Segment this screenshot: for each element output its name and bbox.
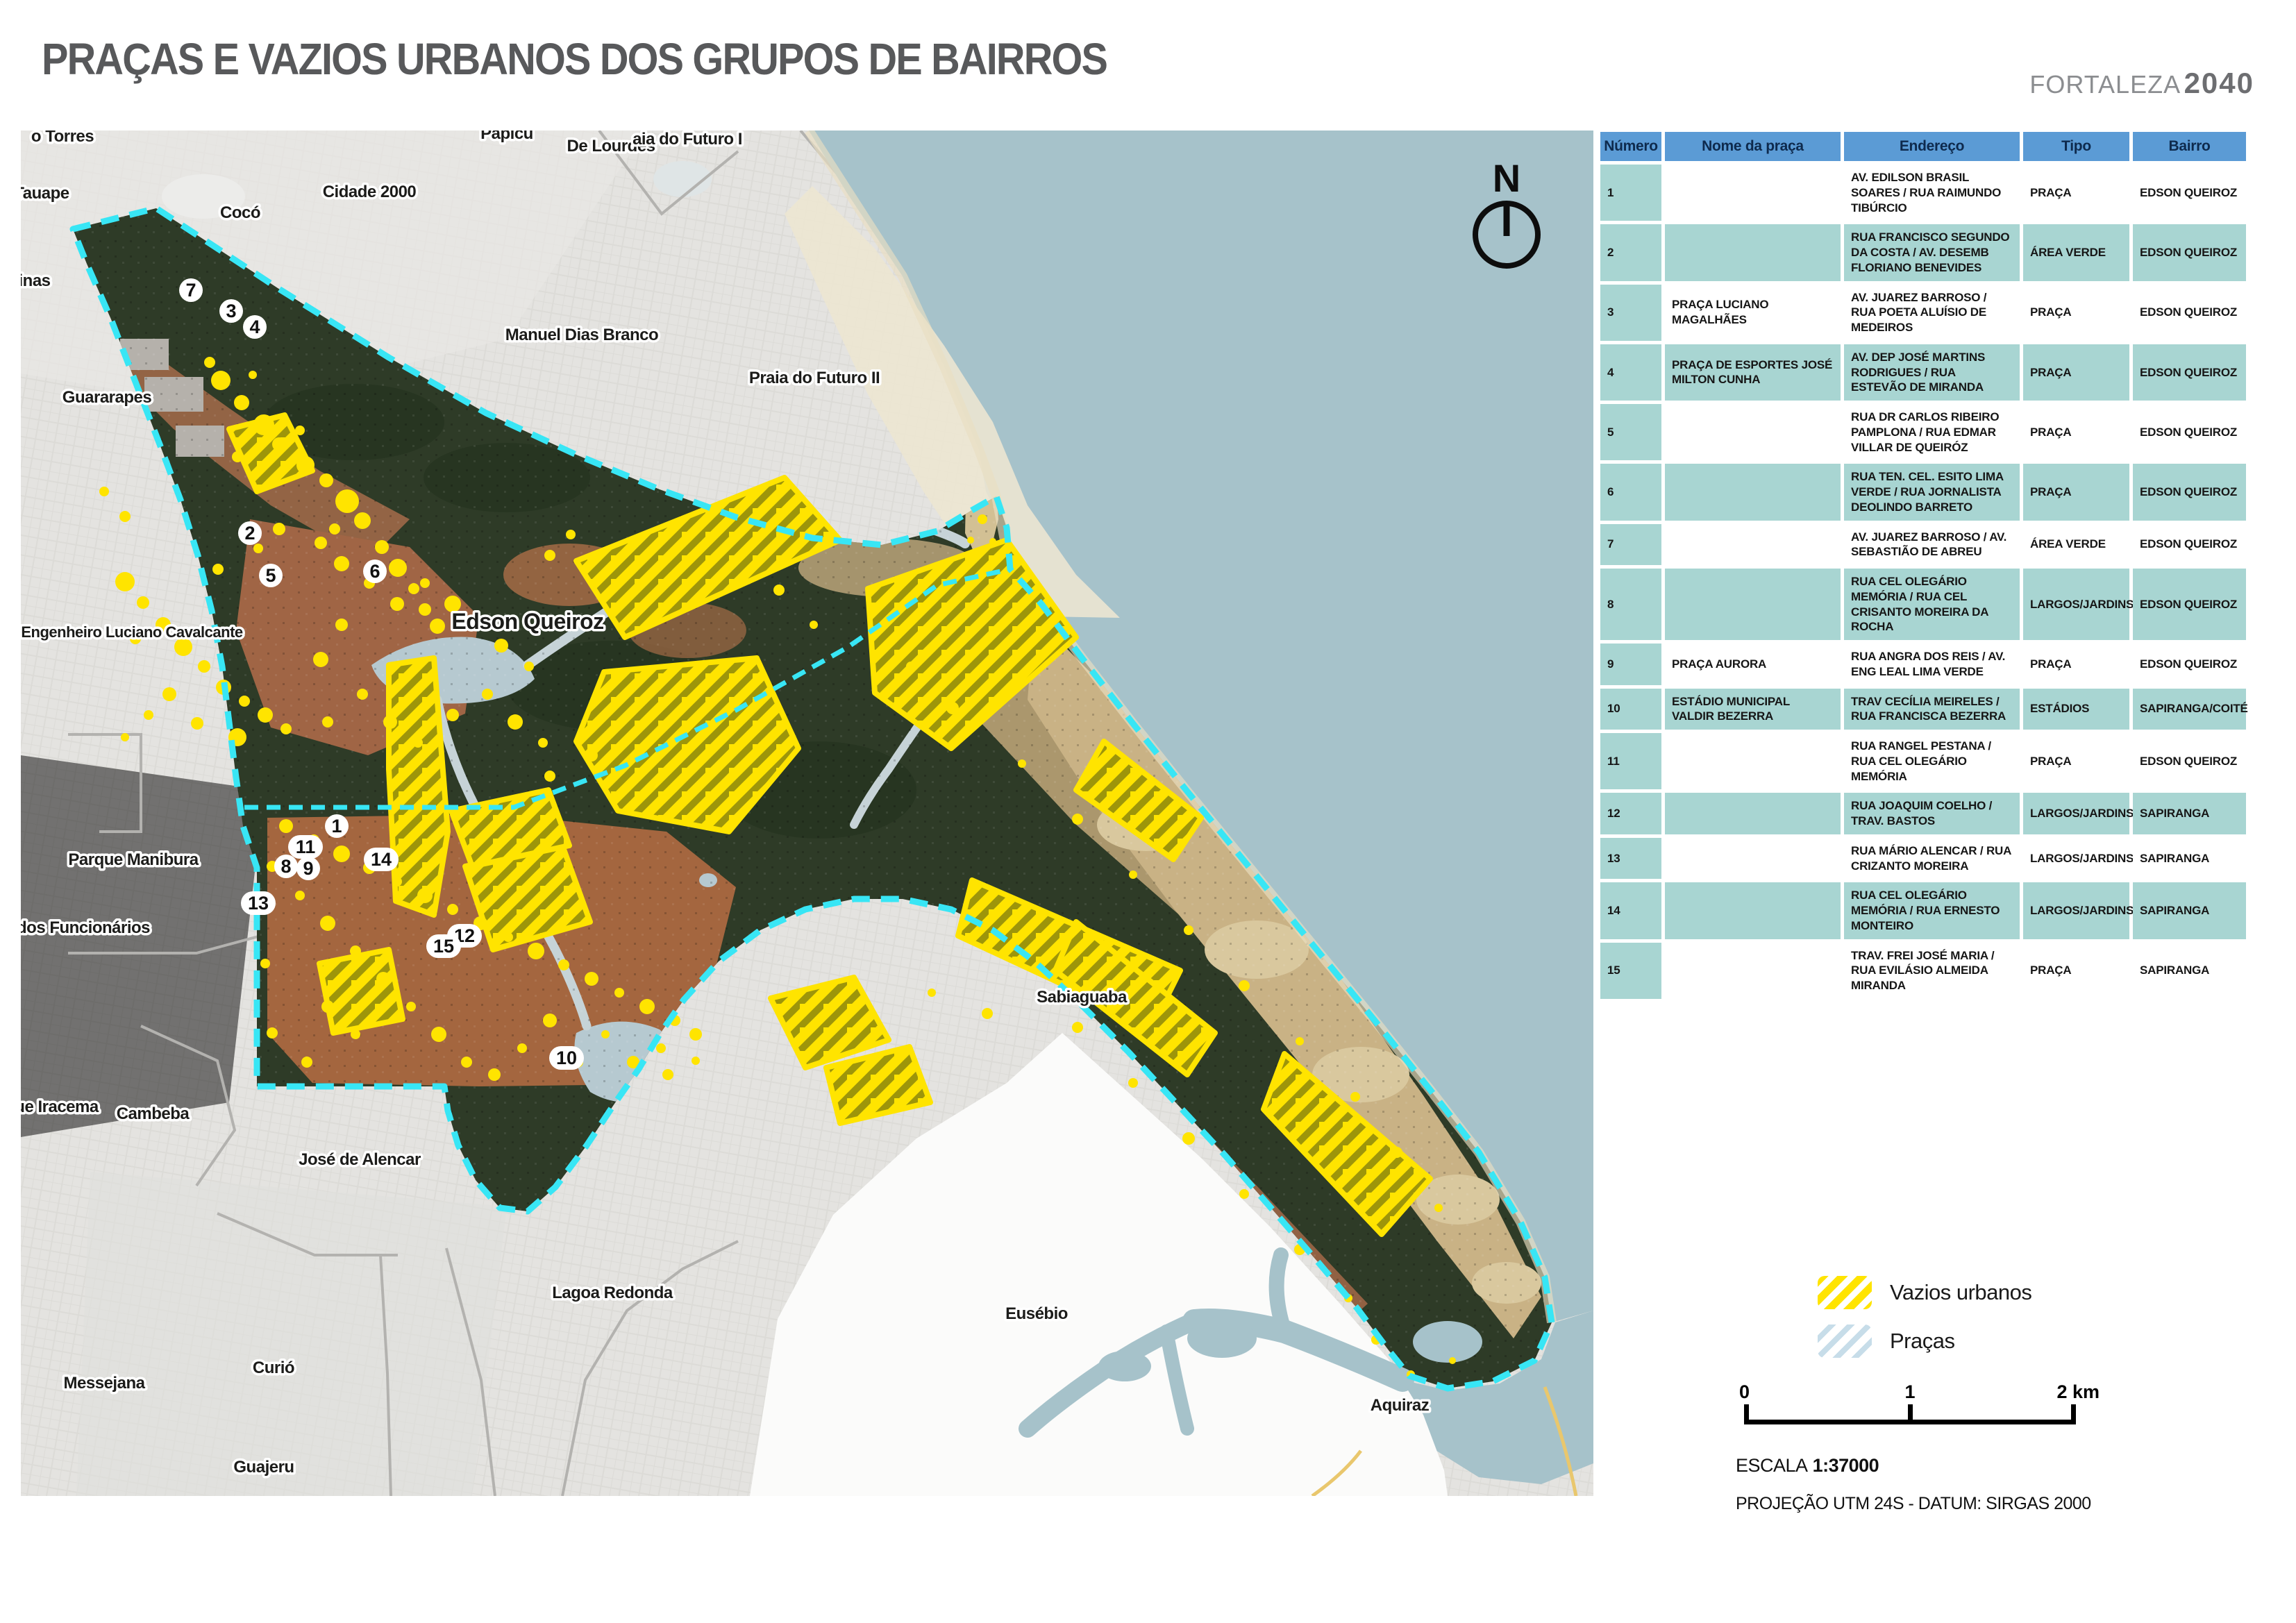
table-cell-r14-nome: [1665, 882, 1841, 939]
map-label: Edson Queiroz: [451, 609, 603, 634]
escala-text: ESCALA 1:37000: [1736, 1455, 1879, 1477]
vazio-dot: [253, 414, 274, 435]
map-label: Parque Manibura: [68, 850, 199, 869]
vazio-dot: [272, 437, 286, 451]
map-legend: Vazios urbanos Praças: [1818, 1276, 2031, 1373]
vazio-dot: [417, 888, 433, 903]
vazio-dot: [119, 511, 131, 522]
table-cell-r11-nome: [1665, 733, 1841, 789]
table-cell-r6-tipo: PRAÇA: [2023, 464, 2129, 520]
table-cell-r4-num: 4: [1600, 344, 1661, 401]
vazio-dot: [585, 749, 598, 762]
vazio-dot: [333, 846, 350, 862]
table-cell-r9-bairro: EDSON QUEIROZ: [2133, 644, 2246, 685]
table-cell-r13-bairro: SAPIRANGA: [2133, 838, 2246, 880]
map-label: o Torres: [31, 131, 94, 146]
table-cell-r6-nome: [1665, 464, 1841, 520]
vazio-dot: [1296, 1037, 1304, 1045]
table-cell-r6-endereco: RUA TEN. CEL. ESITO LIMA VERDE / RUA JOR…: [1844, 464, 2020, 520]
map-label: Cidade 2000: [323, 183, 417, 201]
table-cell-r3-bairro: EDSON QUEIROZ: [2133, 285, 2246, 341]
table-cell-r14-bairro: SAPIRANGA: [2133, 882, 2246, 939]
table-cell-r7-num: 7: [1600, 524, 1661, 566]
table-cell-r5-nome: [1665, 404, 1841, 460]
vazio-dot: [260, 959, 270, 968]
vazio-dot: [392, 877, 402, 886]
table-cell-r2-bairro: EDSON QUEIROZ: [2133, 224, 2246, 280]
vazio-dot: [488, 1068, 501, 1081]
table-cell-r2-nome: [1665, 224, 1841, 280]
legend-item-pracas: Praças: [1818, 1325, 2031, 1358]
vazio-dot: [1350, 1092, 1360, 1102]
table-cell-r9-tipo: PRAÇA: [2023, 644, 2129, 685]
vazio-dot: [334, 556, 349, 571]
vazio-dot: [296, 456, 315, 474]
table-header-0: Número: [1600, 132, 1661, 161]
table-cell-r8-nome: [1665, 569, 1841, 640]
table-cell-r15-num: 15: [1600, 943, 1661, 999]
table-cell-r15-tipo: PRAÇA: [2023, 943, 2129, 999]
map-label: dos Funcionários: [21, 918, 150, 937]
vazio-dot: [461, 1057, 472, 1068]
vazio-polygon-3: [389, 658, 448, 915]
vazio-dot: [144, 710, 153, 720]
table-cell-r1-endereco: AV. EDILSON BRASIL SOARES / RUA RAIMUNDO…: [1844, 165, 2020, 221]
svg-text:3: 3: [226, 301, 236, 321]
table-cell-r7-nome: [1665, 524, 1841, 566]
table-cell-r15-nome: [1665, 943, 1841, 999]
table-header-4: Bairro: [2133, 132, 2246, 161]
legend-label: Vazios urbanos: [1890, 1280, 2031, 1305]
vazio-dot: [191, 717, 203, 730]
vazio-dot: [357, 689, 368, 700]
table-cell-r11-endereco: RUA RANGEL PESTANA / RUA CEL OLEGÁRIO ME…: [1844, 733, 2020, 789]
pracas-table: NúmeroNome da praçaEndereçoTipoBairro1AV…: [1600, 132, 2246, 999]
svg-text:10: 10: [556, 1048, 577, 1068]
vazio-dot: [810, 621, 818, 629]
table-cell-r9-nome: PRAÇA AURORA: [1665, 644, 1841, 685]
vazio-dot: [232, 451, 243, 462]
table-cell-r3-num: 3: [1600, 285, 1661, 341]
table-cell-r13-tipo: LARGOS/JARDINS: [2023, 838, 2129, 880]
map-label: Manuel Dias Branco: [505, 326, 658, 344]
table-cell-r9-endereco: RUA ANGRA DOS REIS / AV. ENG LEAL LIMA V…: [1844, 644, 2020, 685]
table-cell-r2-tipo: ÁREA VERDE: [2023, 224, 2129, 280]
map-label: Cocó: [220, 203, 260, 222]
legend-label: Praças: [1890, 1329, 1954, 1354]
vazio-dot: [544, 771, 555, 782]
vazio-dot: [408, 583, 419, 594]
vazio-dot: [419, 603, 431, 616]
map-marker-10: 10: [549, 1046, 584, 1070]
map-label: Aquiraz: [1371, 1396, 1430, 1415]
page-title: PRAÇAS E VAZIOS URBANOS DOS GRUPOS DE BA…: [42, 33, 1107, 85]
map-svg: o TorresPapicuDe Lourdesaia do Futuro IT…: [21, 131, 1593, 1496]
vazio-dot: [656, 1043, 666, 1053]
compass-n-label: N: [1493, 156, 1520, 200]
map-label: Guararapes: [62, 388, 152, 407]
vazio-dot: [280, 723, 292, 734]
table-cell-r7-bairro: EDSON QUEIROZ: [2133, 524, 2246, 566]
vazio-dot: [121, 733, 129, 741]
vazio-dot: [295, 891, 305, 900]
vazio-dot: [406, 1002, 416, 1011]
table-cell-r4-bairro: EDSON QUEIROZ: [2133, 344, 2246, 401]
map-label: Curió: [253, 1359, 294, 1377]
vazio-dot: [1239, 1189, 1249, 1199]
table-cell-r6-bairro: EDSON QUEIROZ: [2133, 464, 2246, 520]
vazio-dot: [967, 537, 974, 544]
map-label: Lagoa Redonda: [552, 1284, 673, 1302]
svg-text:9: 9: [303, 858, 313, 879]
svg-text:11: 11: [296, 836, 316, 857]
vazio-dot: [503, 932, 513, 942]
table-cell-r3-endereco: AV. JUAREZ BARROSO / RUA POETA ALUÍSIO D…: [1844, 285, 2020, 341]
vazio-dot: [137, 596, 149, 609]
table-cell-r14-num: 14: [1600, 882, 1661, 939]
vazio-dot: [946, 702, 959, 714]
table-cell-r2-num: 2: [1600, 224, 1661, 280]
table-cell-r13-endereco: RUA MÁRIO ALENCAR / RUA CRIZANTO MOREIRA: [1844, 838, 2020, 880]
vazio-dot: [1239, 980, 1250, 991]
table-cell-r1-num: 1: [1600, 165, 1661, 221]
svg-text:7: 7: [185, 280, 196, 301]
vazio-dot: [313, 652, 328, 667]
fortaleza-2040-logo: FORTALEZA 2040: [2029, 67, 2254, 100]
scale-tick-2: 2 km: [2056, 1381, 2100, 1403]
table-cell-r4-endereco: AV. DEP JOSÉ MARTINS RODRIGUES / RUA EST…: [1844, 344, 2020, 401]
scale-tick-0: 0: [1739, 1381, 1750, 1403]
table-cell-r7-endereco: AV. JUAREZ BARROSO / AV. SEBASTIÃO DE AB…: [1844, 524, 2020, 566]
vazio-dot: [906, 662, 916, 671]
projection-text: PROJEÇÃO UTM 24S - DATUM: SIRGAS 2000: [1736, 1494, 2091, 1514]
vazio-dot: [538, 738, 548, 748]
vazio-dot: [524, 662, 534, 671]
table-cell-r6-num: 6: [1600, 464, 1661, 520]
table-cell-r11-tipo: PRAÇA: [2023, 733, 2129, 789]
table-cell-r8-bairro: EDSON QUEIROZ: [2133, 569, 2246, 640]
vazio-dot: [528, 943, 544, 959]
table-cell-r5-tipo: PRAÇA: [2023, 404, 2129, 460]
vazio-dot: [267, 1027, 278, 1038]
svg-text:4: 4: [249, 317, 260, 337]
vazio-dot: [982, 1008, 993, 1019]
table-cell-r12-endereco: RUA JOAQUIM COELHO / TRAV. BASTOS: [1844, 793, 2020, 834]
vazio-dot: [430, 619, 445, 634]
vazio-dot: [1072, 814, 1083, 825]
map-label: Messejana: [64, 1374, 146, 1393]
table-cell-r8-endereco: RUA CEL OLEGÁRIO MEMÓRIA / RUA CEL CRISA…: [1844, 569, 2020, 640]
map-marker-4: 4: [243, 315, 267, 339]
vazio-dot: [273, 523, 285, 535]
vazio-dot: [1128, 1078, 1138, 1088]
table-cell-r14-endereco: RUA CEL OLEGÁRIO MEMÓRIA / RUA ERNESTO M…: [1844, 882, 2020, 939]
table-cell-r5-num: 5: [1600, 404, 1661, 460]
map-label: Sabiaguaba: [1037, 988, 1128, 1007]
svg-text:6: 6: [369, 561, 380, 582]
svg-text:8: 8: [280, 856, 291, 877]
brand-year: 2040: [2184, 67, 2254, 99]
map-label: rque Iracema: [21, 1098, 99, 1116]
vazio-dot: [253, 544, 263, 553]
vazio-polygon-5: [319, 950, 403, 1033]
table-cell-r4-tipo: PRAÇA: [2023, 344, 2129, 401]
vazio-dot: [431, 1027, 446, 1042]
vazio-dot: [335, 489, 359, 513]
map-marker-6: 6: [363, 560, 387, 583]
map-marker-2: 2: [238, 521, 262, 545]
table-cell-r10-tipo: ESTÁDIOS: [2023, 689, 2129, 730]
table-cell-r3-nome: PRAÇA LUCIANO MAGALHÃES: [1665, 285, 1841, 341]
vazio-dot: [928, 989, 936, 997]
vazio-dot: [447, 904, 458, 915]
table-cell-r15-endereco: TRAV. FREI JOSÉ MARIA / RUA EVILÁSIO ALM…: [1844, 943, 2020, 999]
vazio-dot: [558, 959, 569, 970]
scale-tick-1: 1: [1904, 1381, 1915, 1403]
table-cell-r12-num: 12: [1600, 793, 1661, 834]
vazio-dot: [162, 687, 176, 701]
vazio-dot: [329, 523, 340, 535]
vazio-dot: [204, 357, 215, 368]
table-cell-r12-nome: [1665, 793, 1841, 834]
legend-item-vazios: Vazios urbanos: [1818, 1276, 2031, 1309]
map-canvas: o TorresPapicuDe Lourdesaia do Futuro IT…: [21, 131, 1593, 1496]
vazio-dot: [773, 585, 785, 596]
vazio-dot: [585, 972, 598, 986]
table-header-1: Nome da praça: [1665, 132, 1841, 161]
map-label: José de Alencar: [299, 1150, 421, 1169]
table-cell-r5-endereco: RUA DR CARLOS RIBEIRO PAMPLONA / RUA EDM…: [1844, 404, 2020, 460]
table-cell-r4-nome: PRAÇA DE ESPORTES JOSÉ MILTON CUNHA: [1665, 344, 1841, 401]
map-marker-7: 7: [179, 278, 203, 302]
vazio-dot: [376, 972, 390, 986]
vazio-dot: [383, 715, 397, 729]
vazio-dot: [482, 689, 493, 700]
map-label: Cambeba: [117, 1104, 190, 1123]
svg-text:14: 14: [371, 849, 392, 870]
vazio-dot: [234, 395, 249, 410]
vazio-dot: [1449, 1357, 1456, 1364]
table-cell-r12-tipo: LARGOS/JARDINS: [2023, 793, 2129, 834]
map-marker-11: 11: [288, 835, 323, 859]
vazio-dot: [1182, 1132, 1195, 1145]
vazio-dot: [319, 473, 333, 487]
table-cell-r5-bairro: EDSON QUEIROZ: [2133, 404, 2246, 460]
vazio-dot: [351, 1029, 360, 1039]
table-cell-r2-endereco: RUA FRANCISCO SEGUNDO DA COSTA / AV. DES…: [1844, 224, 2020, 280]
vazio-dot: [389, 559, 407, 577]
map-label: Guajeru: [233, 1458, 294, 1477]
vazio-dot: [375, 540, 389, 554]
map-label: Papicu: [480, 131, 533, 143]
vazio-dot: [320, 916, 335, 931]
table-cell-r12-bairro: SAPIRANGA: [2133, 793, 2246, 834]
table-cell-r13-num: 13: [1600, 838, 1661, 880]
vazio-dot: [543, 1014, 557, 1027]
vazios-urbanos-swatch-icon: [1818, 1276, 1872, 1309]
table-cell-r10-bairro: SAPIRANGA/COITÉ: [2133, 689, 2246, 730]
vazio-dot: [601, 1030, 610, 1038]
table-cell-r1-nome: [1665, 165, 1841, 221]
vazio-dot: [315, 537, 327, 549]
vazio-dot: [295, 426, 305, 435]
escala-value: 1:37000: [1813, 1455, 1879, 1476]
vazio-dot: [544, 550, 555, 561]
table-cell-r8-tipo: LARGOS/JARDINS: [2023, 569, 2129, 640]
map-marker-15: 15: [426, 934, 461, 958]
vazio-dot: [1018, 759, 1026, 768]
vazio-dot: [692, 1057, 700, 1065]
vazio-dot: [301, 1057, 312, 1068]
table-cell-r10-endereco: TRAV CECÍLIA MEIRELES / RUA FRANCISCA BE…: [1844, 689, 2020, 730]
vazio-dot: [508, 714, 523, 730]
table-cell-r10-num: 10: [1600, 689, 1661, 730]
vazio-dot: [354, 512, 371, 529]
vazio-dot: [198, 660, 210, 673]
table-cell-r10-nome: ESTÁDIO MUNICIPAL VALDIR BEZERRA: [1665, 689, 1841, 730]
svg-text:2: 2: [244, 523, 255, 544]
vazio-dot: [211, 371, 231, 390]
vazio-dot: [662, 1069, 673, 1080]
vazio-dot: [978, 514, 987, 524]
table-cell-r1-tipo: PRAÇA: [2023, 165, 2129, 221]
pracas-swatch-icon: [1818, 1325, 1872, 1358]
map-marker-14: 14: [364, 848, 399, 871]
vazio-dot: [420, 578, 430, 588]
table-cell-r15-bairro: SAPIRANGA: [2133, 943, 2246, 999]
vazio-dot: [494, 639, 508, 653]
svg-text:1: 1: [331, 816, 342, 836]
vazio-dot: [446, 709, 459, 721]
map-marker-1: 1: [325, 814, 349, 838]
svg-text:5: 5: [265, 565, 276, 586]
vazio-dot: [212, 564, 224, 575]
table-header-2: Endereço: [1844, 132, 2020, 161]
map-label: Eusébio: [1005, 1304, 1068, 1323]
table-cell-r11-bairro: EDSON QUEIROZ: [2133, 733, 2246, 789]
vazio-dot: [517, 1043, 527, 1053]
table-cell-r3-tipo: PRAÇA: [2023, 285, 2129, 341]
scale-bar: 0 1 2 km: [1744, 1381, 2076, 1424]
map-label: Engenheiro Luciano Cavalcante: [21, 623, 243, 641]
map-label: alinas: [21, 271, 51, 290]
vazio-dot: [1072, 1022, 1083, 1033]
map-marker-8: 8: [274, 855, 298, 878]
svg-text:15: 15: [433, 936, 454, 957]
map-marker-5: 5: [259, 564, 283, 587]
vazio-dot: [279, 819, 293, 833]
table-cell-r1-bairro: EDSON QUEIROZ: [2133, 165, 2246, 221]
table-cell-r11-num: 11: [1600, 733, 1661, 789]
map-label: Tauape: [21, 184, 69, 203]
vazio-dot: [1129, 871, 1137, 879]
table-cell-r7-tipo: ÁREA VERDE: [2023, 524, 2129, 566]
vazio-dot: [566, 530, 576, 539]
map-marker-9: 9: [296, 857, 320, 880]
vazio-dot: [258, 707, 273, 723]
vazio-dot: [350, 945, 361, 957]
vazio-dot: [239, 696, 250, 707]
vazio-dot: [390, 597, 404, 611]
vazio-dot: [614, 988, 624, 998]
vazio-dot: [1434, 1204, 1443, 1212]
vazio-dot: [1184, 925, 1193, 935]
map-marker-13: 13: [241, 891, 276, 915]
brand-name: FORTALEZA: [2029, 70, 2181, 99]
table-cell-r13-nome: [1665, 838, 1841, 880]
table-cell-r8-num: 8: [1600, 569, 1661, 640]
vazio-dot: [639, 999, 655, 1014]
map-label: aia do Futuro I: [632, 131, 742, 149]
vazio-dot: [989, 538, 996, 545]
table-cell-r9-num: 9: [1600, 644, 1661, 685]
vazio-dot: [335, 619, 348, 631]
vazio-dot: [322, 716, 333, 728]
table-header-3: Tipo: [2023, 132, 2129, 161]
vazio-dot: [321, 1000, 334, 1013]
table-cell-r14-tipo: LARGOS/JARDINS: [2023, 882, 2129, 939]
map-marker-3: 3: [219, 299, 243, 323]
map-label: Praia do Futuro II: [749, 369, 880, 387]
vazio-dot: [249, 371, 257, 379]
vazio-dot: [1391, 1147, 1402, 1158]
svg-text:13: 13: [248, 893, 269, 914]
vazio-dot: [115, 572, 135, 591]
scale-bar-line: [1744, 1409, 2076, 1424]
vazio-dot: [413, 738, 423, 748]
vazio-dot: [689, 1028, 702, 1041]
vazio-dot: [99, 487, 109, 496]
